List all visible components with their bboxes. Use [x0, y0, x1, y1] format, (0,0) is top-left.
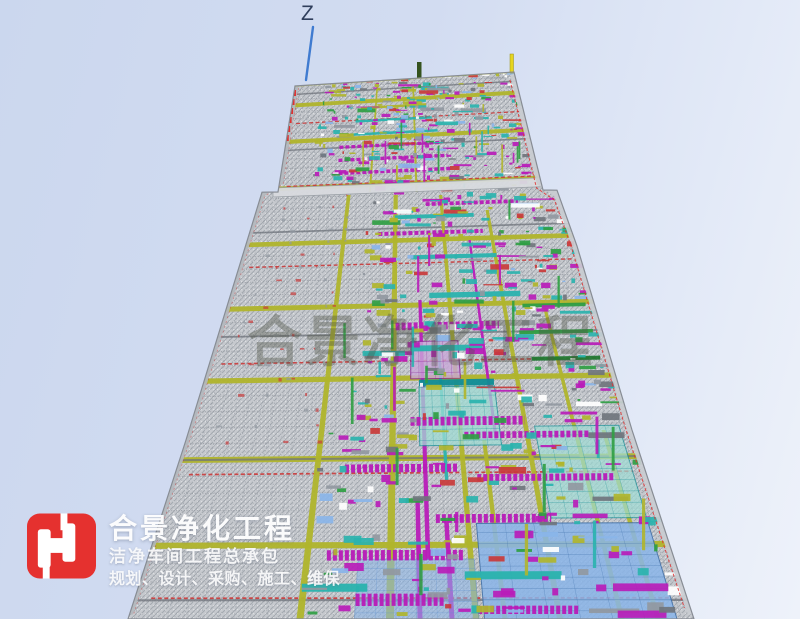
company-logo-icon: [27, 513, 96, 579]
company-tagline: 规划、设计、采购、施工、维保: [109, 571, 340, 589]
company-name: 合景净化工程: [109, 514, 340, 543]
roof-post: [510, 54, 514, 73]
z-axis-label: Z: [301, 3, 314, 24]
company-logo-block: 合景净化工程 洁净车间工程总承包 规划、设计、采购、施工、维保: [27, 513, 340, 589]
z-axis-line: [306, 27, 313, 80]
bim-render-screenshot: Z 合景净化工程 合景净化工程 洁净车间工程总承包 规划、设计、采购、施工、维保: [0, 0, 800, 619]
roof-figure: [417, 62, 422, 78]
company-logo-text: 合景净化工程 洁净车间工程总承包 规划、设计、采购、施工、维保: [109, 513, 340, 589]
company-subtitle: 洁净车间工程总承包: [109, 548, 340, 567]
